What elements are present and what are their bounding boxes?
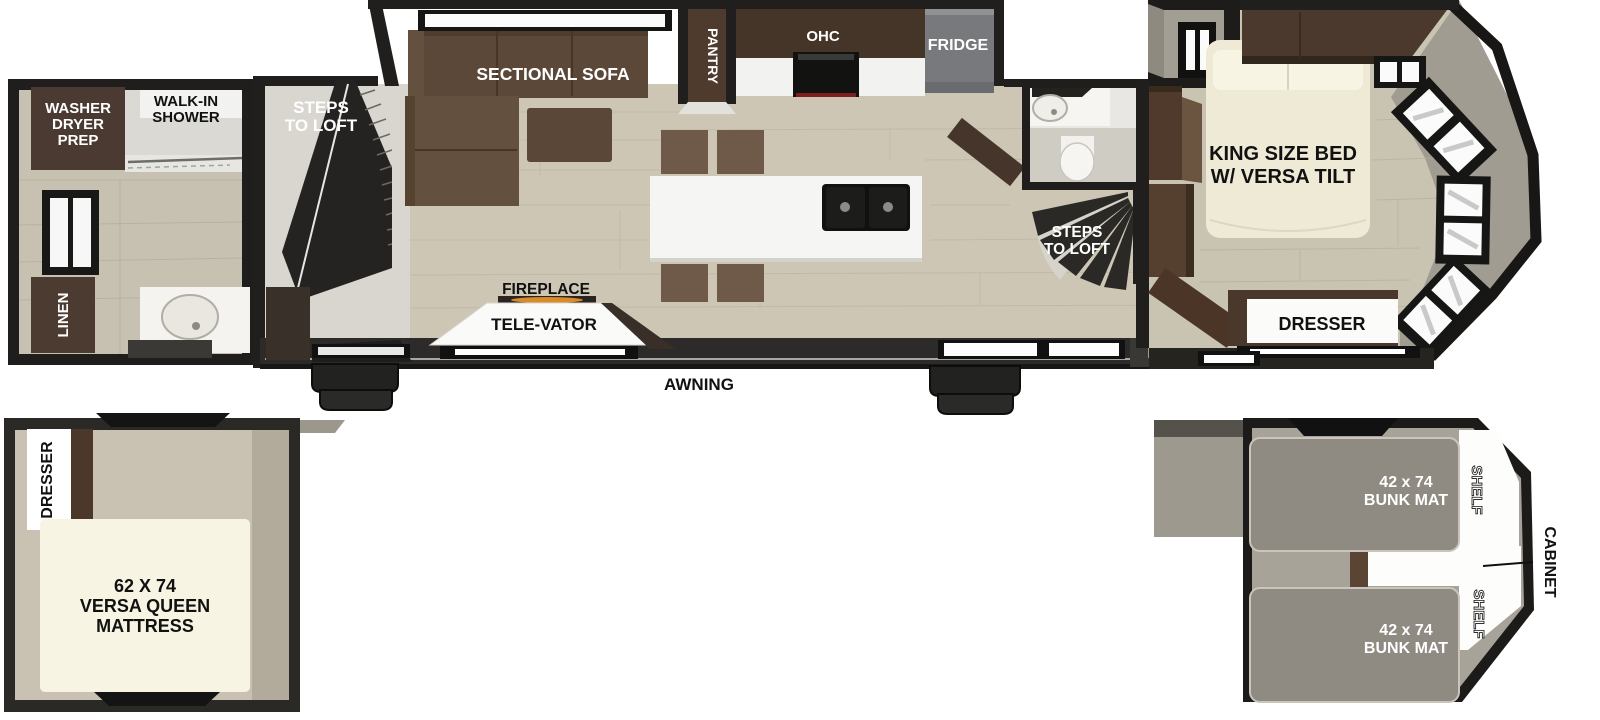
svg-text:62 X 74: 62 X 74 [114, 576, 176, 596]
svg-text:TO LOFT: TO LOFT [285, 116, 358, 135]
svg-text:STEPS: STEPS [293, 98, 349, 117]
svg-text:BUNK MAT: BUNK MAT [1364, 640, 1448, 657]
svg-text:WASHER: WASHER [45, 100, 111, 117]
svg-text:PREP: PREP [58, 132, 99, 149]
svg-text:MATTRESS: MATTRESS [96, 616, 194, 636]
svg-text:TO LOFT: TO LOFT [1044, 241, 1111, 258]
svg-text:SHELF: SHELF [1470, 589, 1487, 638]
svg-text:DRYER: DRYER [52, 116, 104, 133]
svg-text:W/ VERSA TILT: W/ VERSA TILT [1211, 166, 1355, 188]
svg-text:SECTIONAL SOFA: SECTIONAL SOFA [476, 64, 630, 84]
svg-text:42 x 74: 42 x 74 [1379, 622, 1432, 639]
svg-text:WALK-IN: WALK-IN [154, 93, 218, 110]
svg-text:DRESSER: DRESSER [1278, 314, 1365, 334]
svg-text:OHC: OHC [806, 28, 840, 45]
svg-text:DRESSER: DRESSER [39, 441, 56, 519]
svg-text:CABINET: CABINET [1541, 526, 1558, 597]
svg-text:AWNING: AWNING [664, 375, 734, 394]
svg-text:TELE-VATOR: TELE-VATOR [491, 315, 597, 334]
svg-text:BUNK MAT: BUNK MAT [1364, 492, 1448, 509]
svg-text:STEPS: STEPS [1052, 224, 1103, 241]
svg-text:SHELF: SHELF [1468, 465, 1485, 514]
svg-text:LINEN: LINEN [55, 293, 72, 338]
svg-text:FRIDGE: FRIDGE [928, 37, 989, 54]
svg-text:FIREPLACE: FIREPLACE [502, 281, 590, 298]
svg-text:VERSA QUEEN: VERSA QUEEN [80, 596, 210, 616]
svg-text:KING SIZE BED: KING SIZE BED [1209, 143, 1357, 165]
svg-text:PANTRY: PANTRY [705, 28, 721, 85]
svg-text:42 x 74: 42 x 74 [1379, 474, 1432, 491]
svg-text:SHOWER: SHOWER [152, 109, 220, 126]
